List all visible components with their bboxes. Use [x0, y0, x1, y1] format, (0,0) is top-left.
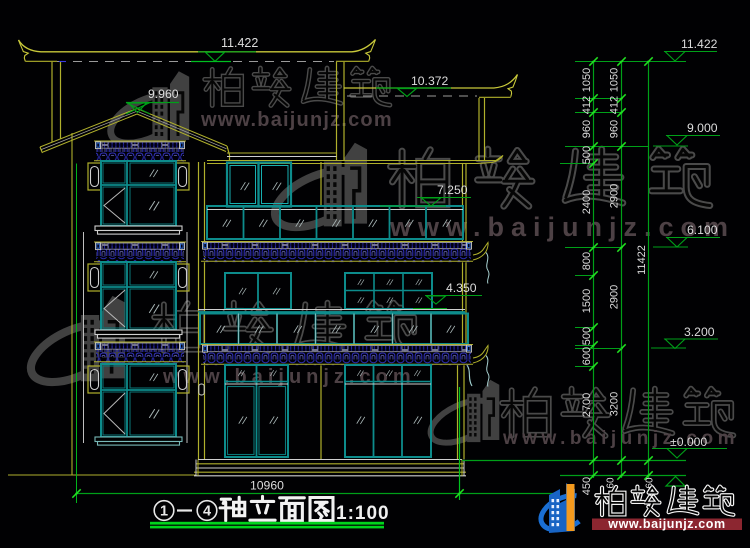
svg-text:11422: 11422 — [636, 245, 648, 275]
svg-text:450: 450 — [581, 477, 593, 495]
svg-text:1050: 1050 — [581, 68, 593, 92]
svg-text:6.100: 6.100 — [687, 223, 718, 237]
svg-text:1:100: 1:100 — [336, 503, 390, 524]
svg-text:500: 500 — [581, 327, 593, 345]
svg-text:4.350: 4.350 — [446, 281, 477, 295]
svg-text:10960: 10960 — [250, 479, 284, 493]
svg-text:2900: 2900 — [609, 285, 621, 309]
svg-text:7.250: 7.250 — [437, 183, 468, 197]
svg-text:3.200: 3.200 — [684, 325, 715, 339]
svg-text:9.000: 9.000 — [687, 121, 718, 135]
svg-text:2900: 2900 — [609, 184, 621, 208]
svg-text:2700: 2700 — [581, 393, 593, 417]
svg-text:600: 600 — [581, 347, 593, 365]
svg-text:10.372: 10.372 — [411, 74, 448, 88]
svg-text:9.960: 9.960 — [148, 87, 179, 101]
svg-text:960: 960 — [581, 120, 593, 138]
svg-text:4: 4 — [203, 504, 211, 520]
svg-text:412: 412 — [581, 96, 593, 114]
svg-text:960: 960 — [609, 120, 621, 138]
svg-text:412: 412 — [609, 96, 621, 114]
svg-text:1050: 1050 — [609, 68, 621, 92]
svg-text:www.baijunjz.com: www.baijunjz.com — [200, 109, 393, 131]
svg-text:1: 1 — [160, 504, 168, 520]
svg-text:2400: 2400 — [581, 190, 593, 214]
svg-text:±0.000: ±0.000 — [670, 435, 707, 449]
svg-text:800: 800 — [581, 252, 593, 270]
svg-text:11.422: 11.422 — [221, 36, 258, 50]
svg-text:www.baijunjz.com: www.baijunjz.com — [607, 517, 725, 531]
svg-text:11.422: 11.422 — [681, 37, 718, 51]
svg-text:1500: 1500 — [581, 289, 593, 313]
svg-text:3200: 3200 — [609, 392, 621, 416]
svg-text:500: 500 — [581, 146, 593, 164]
